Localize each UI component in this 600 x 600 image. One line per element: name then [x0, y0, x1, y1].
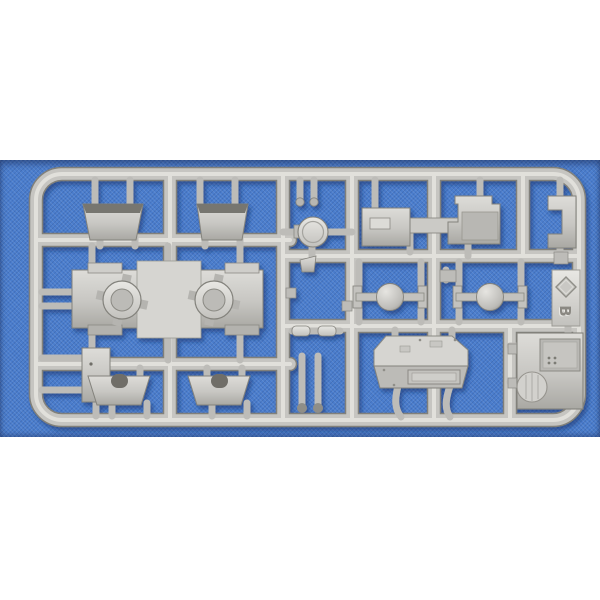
- round-hatch-lid: [294, 217, 328, 247]
- stowage-bin-2: [197, 204, 248, 240]
- letter-b-mark: B B: [555, 305, 574, 317]
- sprue: B B: [36, 174, 583, 420]
- svg-text:B: B: [556, 305, 574, 316]
- sprue-illustration: B B: [0, 160, 600, 437]
- mudguard-2: [188, 374, 250, 405]
- stowage-bin-1: [83, 204, 143, 240]
- rear-panel-with-hatch: [508, 333, 583, 409]
- sprue-letter-tab: B B: [552, 270, 580, 326]
- photo-of-sprue: B B: [0, 160, 600, 437]
- axle-1: [353, 284, 427, 311]
- mudguard-1: [88, 374, 150, 405]
- upper-hull-body: [374, 336, 468, 388]
- axle-2: [453, 284, 527, 311]
- chassis-plate: [72, 261, 263, 338]
- corner-bracket: [548, 196, 576, 248]
